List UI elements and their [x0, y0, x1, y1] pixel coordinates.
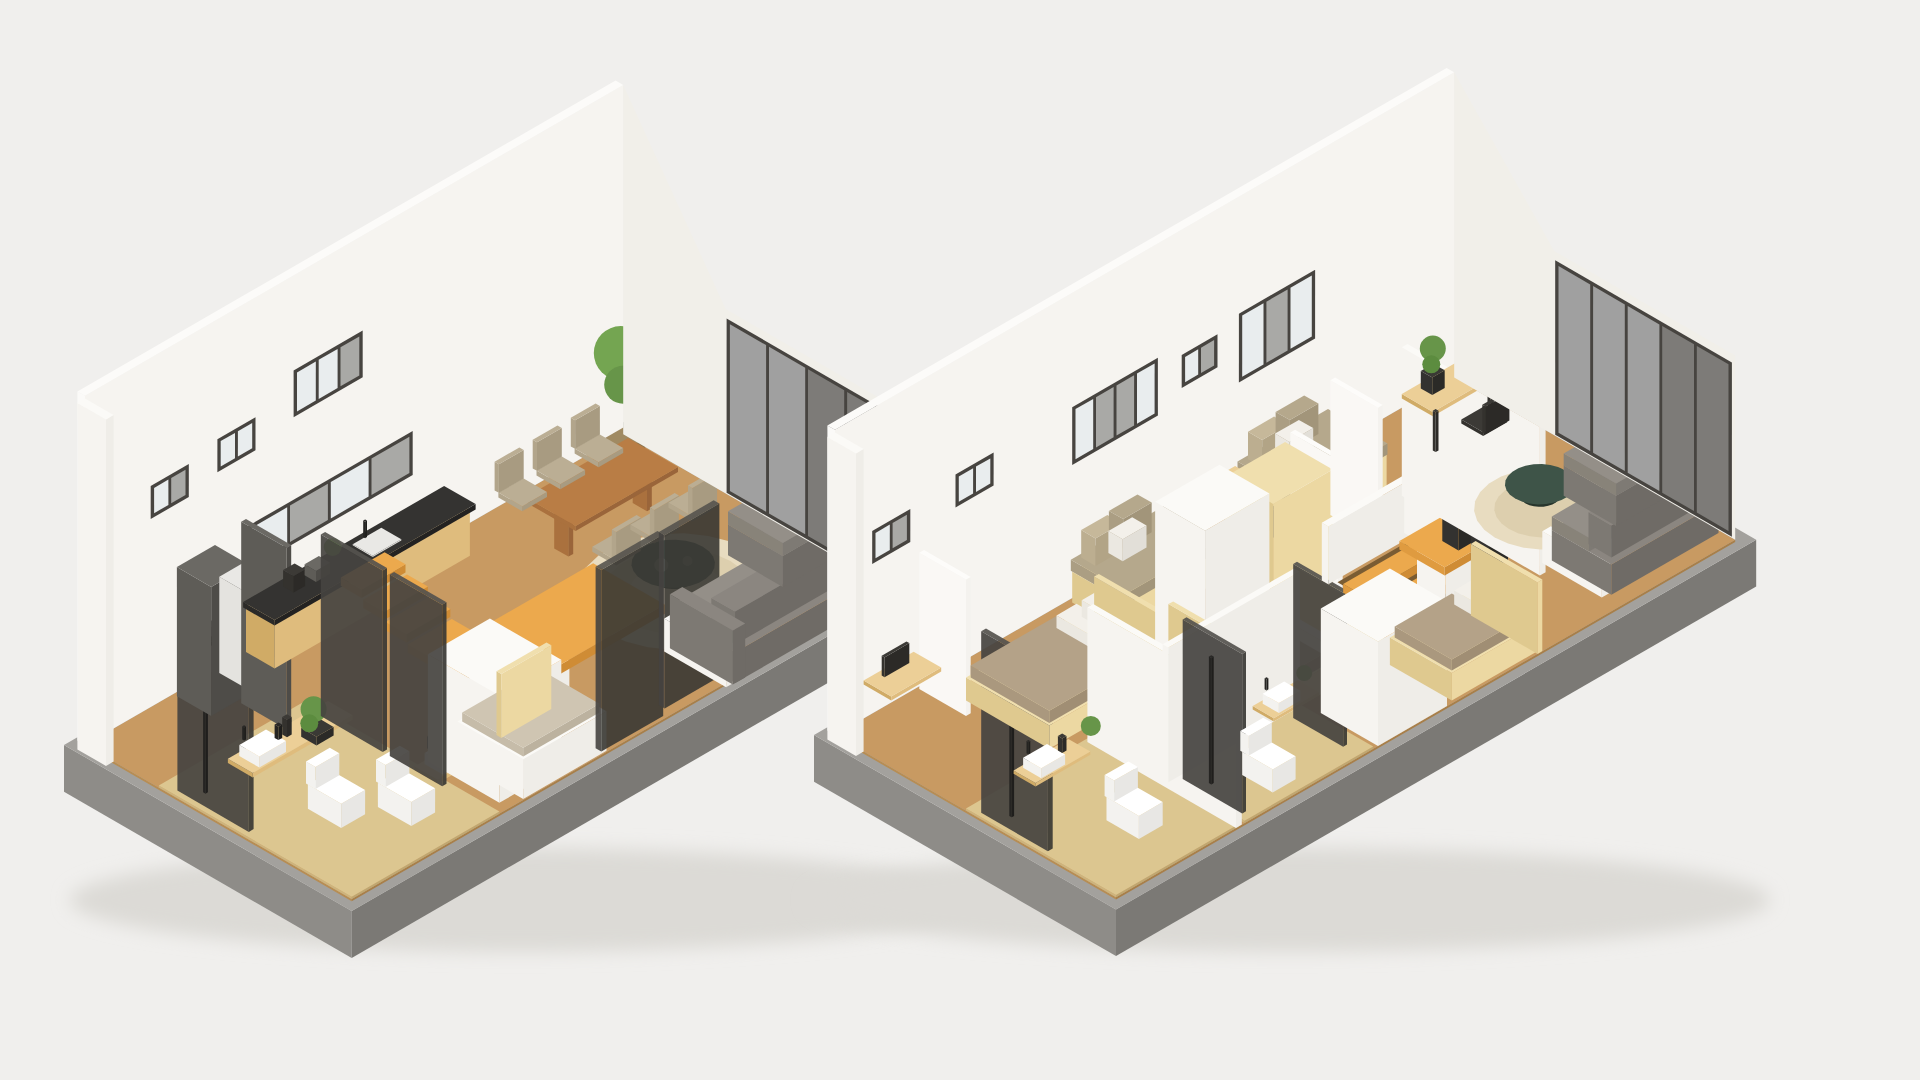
- soap-bottle: [275, 725, 279, 740]
- back-window-wide-2-pane: [1242, 303, 1263, 376]
- bedroom-door: [919, 553, 966, 716]
- dining-chair-back: [571, 418, 575, 449]
- bath-faucet: [1028, 741, 1030, 754]
- isometric-house-scene: [0, 0, 1920, 1080]
- desk-plant: [1422, 355, 1440, 373]
- bath-partition-glass: [390, 575, 442, 787]
- desk-chair-back: [1482, 405, 1485, 434]
- sliding-glass-wall-pane: [769, 347, 805, 535]
- stair-guard-wall: [1322, 523, 1329, 585]
- desk-monitor: [882, 656, 885, 678]
- soap-bottle: [282, 717, 287, 737]
- soap-bottle: [287, 717, 292, 737]
- bath-plant: [1081, 716, 1101, 736]
- dining-chair-back: [495, 462, 499, 493]
- bath-faucet: [242, 726, 244, 740]
- bath-partition-glass: [321, 535, 383, 752]
- bath-faucet: [1267, 678, 1269, 690]
- bath-faucet: [1265, 678, 1267, 690]
- back-window-wide-1-pane: [1137, 364, 1155, 424]
- kitchen-faucet: [363, 521, 365, 539]
- sliding-glass-wall-pane: [1662, 326, 1694, 511]
- side-wall-edge: [106, 415, 114, 766]
- sliding-glass-wall-pane: [730, 324, 766, 512]
- soap-bottle: [1062, 736, 1066, 753]
- desk-leg: [1433, 411, 1436, 452]
- sliding-glass-wall-pane: [1593, 286, 1625, 471]
- entry-door-glass: [596, 567, 602, 752]
- bed-side-panel: [1538, 580, 1543, 654]
- bath-partition-wall: [1163, 644, 1169, 782]
- side-wall-edge: [856, 449, 864, 756]
- back-window-wide-2-pane: [1291, 276, 1312, 349]
- sliding-glass-wall-pane: [1697, 346, 1729, 531]
- bath-faucet: [1027, 741, 1029, 754]
- soap-bottle: [278, 725, 282, 740]
- shower-column: [1211, 657, 1213, 785]
- back-window-wide-1-pane: [1096, 387, 1114, 447]
- entry-door-glass: [659, 532, 665, 709]
- dining-chair-back: [688, 485, 692, 516]
- bath-partition-glass: [383, 568, 387, 752]
- desk-leg: [1436, 411, 1439, 452]
- ground-shadow: [810, 848, 1770, 952]
- bonsai-foliage: [300, 714, 318, 732]
- side-wall-edge: [77, 403, 106, 766]
- kitchen-faucet: [365, 521, 367, 539]
- entry-door-glass: [601, 534, 663, 751]
- shower-column: [1209, 657, 1211, 785]
- bath-partition-glass: [442, 602, 446, 786]
- fridge: [177, 567, 211, 716]
- dining-chair-back: [533, 440, 537, 471]
- sliding-glass-wall-pane: [1559, 266, 1591, 451]
- back-window-wide-1-pane: [1117, 375, 1135, 435]
- back-window-wide-1-pane: [1076, 399, 1094, 459]
- sofa-armrest: [733, 624, 745, 685]
- soap-bottle: [1058, 736, 1062, 753]
- daybed-wood-panel: [497, 671, 502, 738]
- bath-faucet: [244, 726, 246, 740]
- back-window-wide-2-pane: [1266, 289, 1287, 362]
- sliding-glass-wall-pane: [1628, 306, 1660, 491]
- side-wall-edge: [827, 437, 856, 756]
- render-stage: [0, 0, 1920, 1080]
